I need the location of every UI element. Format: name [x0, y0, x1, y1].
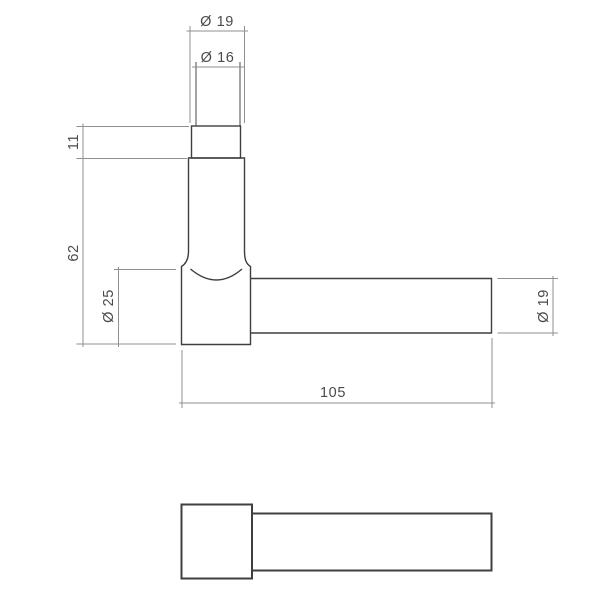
dimension-label-post-height: 62: [66, 244, 82, 261]
dimension-label-collar-height: 11: [66, 134, 82, 150]
dimension-label-lever-length: 105: [320, 385, 346, 401]
front-view: [182, 62, 492, 345]
dimension-label-grip: Ø 19: [536, 289, 552, 323]
dimension-rose: Ø 25: [101, 267, 176, 347]
dimension-lever-length: 105: [179, 338, 495, 408]
post-and-rose-body: [182, 158, 251, 345]
spindle-stem: [196, 62, 240, 126]
rose-intersection-arc: [191, 269, 243, 280]
side-view-lever-bar: [252, 514, 492, 571]
dimension-label-spindle-inner: Ø 16: [201, 50, 235, 66]
collar: [192, 126, 241, 158]
dimension-label-rose: Ø 25: [101, 289, 117, 323]
side-view: [182, 505, 492, 579]
lever-bar: [251, 279, 492, 334]
dimension-grip: Ø 19: [498, 276, 559, 336]
side-view-rose-block: [182, 505, 253, 579]
dimension-label-spindle-outer: Ø 19: [200, 14, 234, 30]
dimension-spindle-inner: Ø 16: [192, 50, 244, 67]
technical-drawing: Ø 19 Ø 16 11 62 Ø 25 105: [0, 0, 600, 600]
dimension-left-heights: 11 62: [66, 124, 189, 348]
drawing-canvas: Ø 19 Ø 16 11 62 Ø 25 105: [0, 0, 600, 600]
